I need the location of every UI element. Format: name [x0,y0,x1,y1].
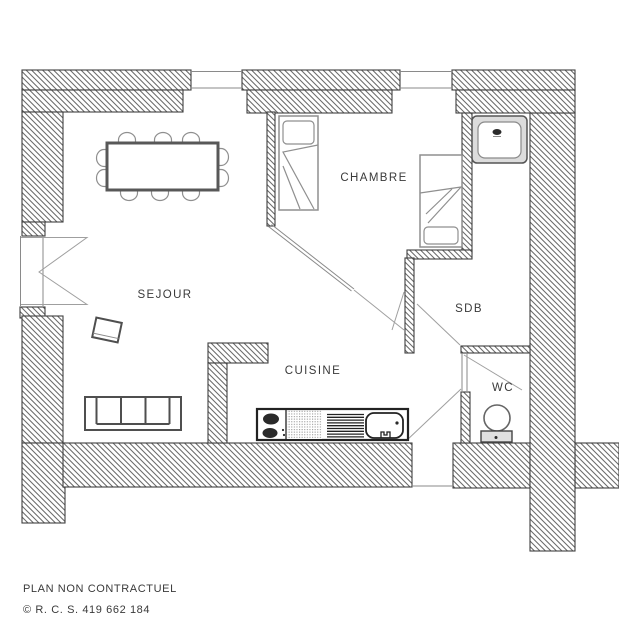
wall-left-bottom [22,443,65,523]
wall-wc-left [461,392,470,443]
wall-chambre-left [267,112,275,226]
dining-chair [183,190,200,201]
chambre-door-swing [354,290,404,330]
toilet [481,405,512,442]
footer: PLAN NON CONTRACTUEL © R. C. S. 419 662 … [23,583,177,616]
wall-top-left-upper [22,70,191,90]
dining-chair [155,133,172,143]
wall-right [530,113,575,551]
dining-chair [152,190,169,201]
chambre-door-leaf [269,225,355,292]
wall-top-right-upper [452,70,575,90]
wall-bottom-far-right [575,443,619,488]
single-bed-left [279,116,318,210]
disclaimer-text: PLAN NON CONTRACTUEL [23,583,177,595]
french-window [21,236,88,306]
wall-chambre-bottom [407,250,472,259]
window [400,72,452,89]
single-bed-right [420,155,462,247]
wall-bottom-main [63,443,412,487]
dining-chair [119,133,136,143]
room-label-chambre: CHAMBRE [340,172,407,184]
faucet-icon [493,129,502,135]
wall-wc-top [461,346,530,353]
accent-chair [92,318,122,343]
dining-table [107,143,218,190]
floor-plan: SEJOUR CHAMBRE CUISINE SDB WC PLAN NON C… [0,0,619,640]
wall-left-stub-top [22,222,45,236]
washbasin [472,116,527,163]
kitchen-counter [257,409,408,440]
dining-chair [218,149,229,166]
hall-door-leaf [392,292,404,330]
dining-set [97,133,229,201]
sofa-frame [85,397,181,430]
sdb-door-swing [417,304,460,345]
wall-top-right-lower [456,90,575,113]
dining-chair [183,133,200,143]
wall-cuisine-horizontal [208,343,268,363]
wall-cuisine-vertical [208,363,227,443]
entry-door-swing [406,389,461,441]
window [191,72,242,89]
room-label-wc: WC [492,382,514,394]
wall-left-lower [22,316,63,443]
wall-top-left-lower [22,90,183,112]
kitchen-sink [366,413,403,438]
dining-chair [97,150,107,167]
drainboard [327,415,364,437]
dining-chair [218,170,229,187]
wall-bottom-right [453,443,530,488]
dining-chair [97,170,107,187]
room-label-sejour: SEJOUR [137,289,192,301]
wall-left-upper [22,112,63,222]
sofa [85,397,181,430]
registration-text: © R. C. S. 419 662 184 [23,604,150,616]
floor-plan-page: SEJOUR CHAMBRE CUISINE SDB WC PLAN NON C… [0,0,619,640]
room-label-cuisine: CUISINE [285,365,341,377]
wall-hall-sdb [405,258,414,353]
dishwasher-panel [287,411,322,440]
wall-top-middle-upper [242,70,400,90]
room-label-sdb: SDB [455,303,483,315]
wall-chambre-right [462,113,472,253]
dining-chair [120,190,137,201]
wall-top-middle-lower [247,90,392,113]
